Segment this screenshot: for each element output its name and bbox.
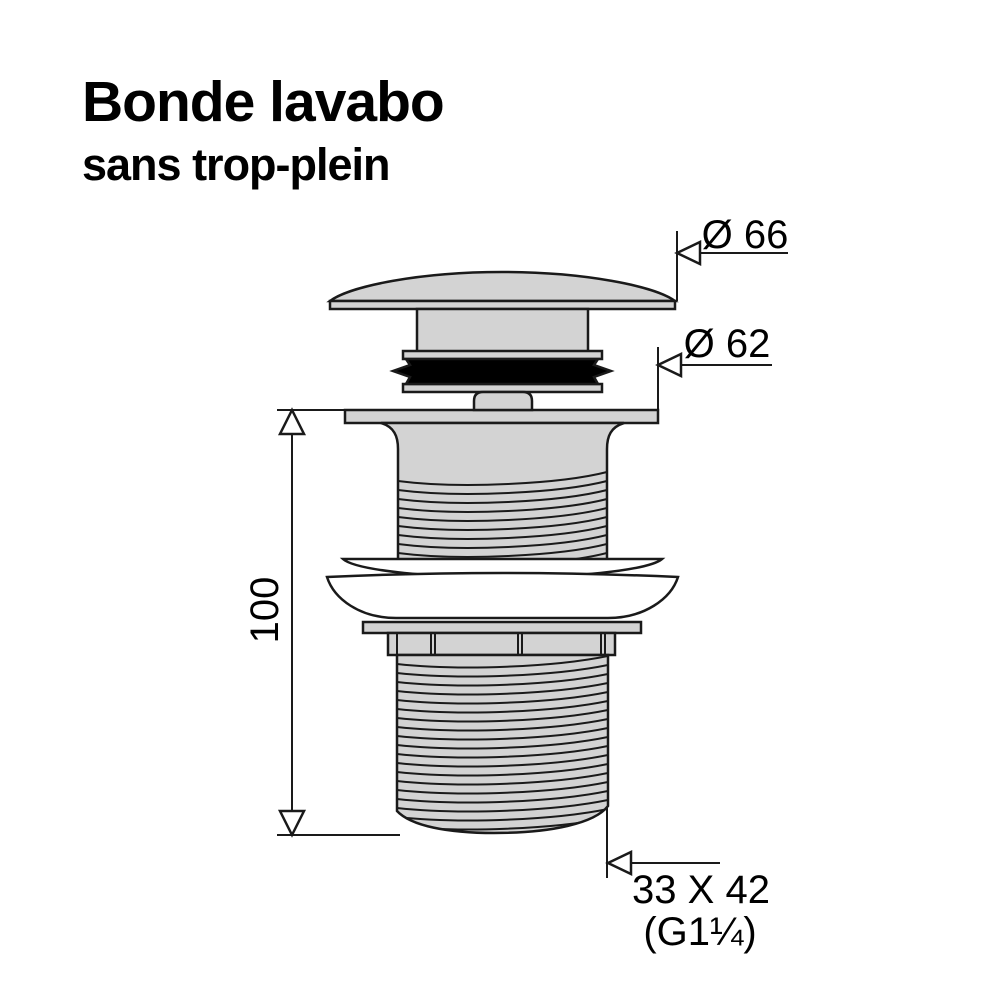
arrowhead-left-icon	[677, 242, 700, 264]
thread-size-label: 33 X 42	[632, 868, 770, 912]
flange-diameter-label: Ø 62	[684, 322, 771, 366]
arrowhead-left-icon	[658, 354, 681, 376]
metal-parts-group	[330, 272, 675, 833]
dimension-thread: 33 X 42 (G1¼)	[607, 807, 770, 954]
thread-standard-label: (G1¼)	[643, 910, 756, 954]
height-label: 100	[243, 577, 287, 644]
locknut-castellated-band	[388, 633, 615, 655]
locknut-top-flange	[363, 622, 641, 633]
arrowhead-down-icon	[280, 811, 304, 835]
cap-neck	[474, 392, 532, 410]
rubber-seal	[393, 359, 611, 384]
dimension-cap-diameter: Ø 66	[677, 213, 788, 301]
cone-sealing-gasket	[327, 573, 678, 618]
dimension-flange-diameter: Ø 62	[658, 322, 772, 410]
cap-diameter-label: Ø 66	[702, 213, 789, 257]
arrowhead-left-icon	[608, 852, 631, 874]
drain-technical-drawing-page: { "title": { "line1": "Bonde lavabo", "l…	[0, 0, 1000, 1000]
cap-stem	[417, 309, 588, 352]
lower-threaded-pipe	[397, 655, 608, 833]
cap-dome	[330, 272, 675, 301]
sink-flange-plate	[345, 410, 658, 423]
drain-diagram: Ø 66 Ø 62 100 33 X 42 (G1¼)	[0, 0, 1000, 1000]
white-washers-group	[327, 559, 678, 618]
arrowhead-up-icon	[280, 410, 304, 434]
